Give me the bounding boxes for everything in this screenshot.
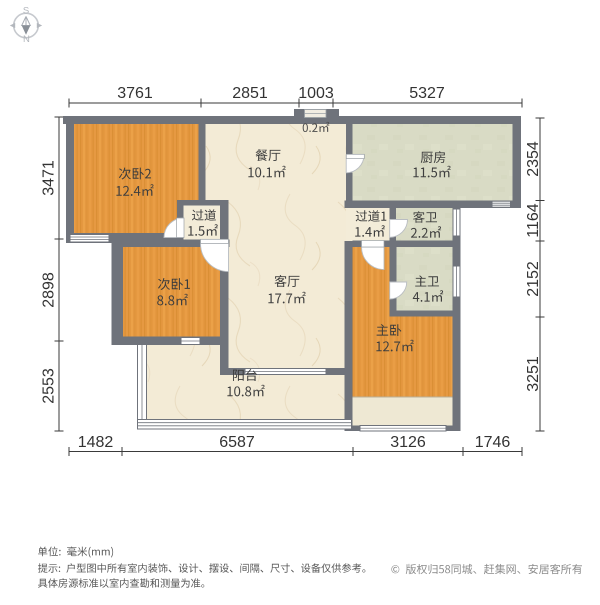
svg-text:3761: 3761 <box>117 85 153 102</box>
svg-text:1482: 1482 <box>78 434 114 451</box>
svg-text:S: S <box>23 5 29 16</box>
svg-text:3251: 3251 <box>525 356 542 392</box>
svg-text:3471: 3471 <box>41 160 58 196</box>
svg-text:2898: 2898 <box>41 272 58 308</box>
svg-text:5327: 5327 <box>409 85 445 102</box>
svg-text:2152: 2152 <box>525 261 542 297</box>
svg-text:1003: 1003 <box>298 85 334 102</box>
svg-text:2553: 2553 <box>41 368 58 404</box>
svg-text:1746: 1746 <box>475 434 511 451</box>
svg-text:3126: 3126 <box>390 434 426 451</box>
svg-text:1164: 1164 <box>525 203 542 238</box>
svg-text:2851: 2851 <box>232 85 268 102</box>
svg-text:N: N <box>23 34 30 45</box>
svg-text:6587: 6587 <box>219 434 255 451</box>
svg-text:2354: 2354 <box>525 141 542 177</box>
